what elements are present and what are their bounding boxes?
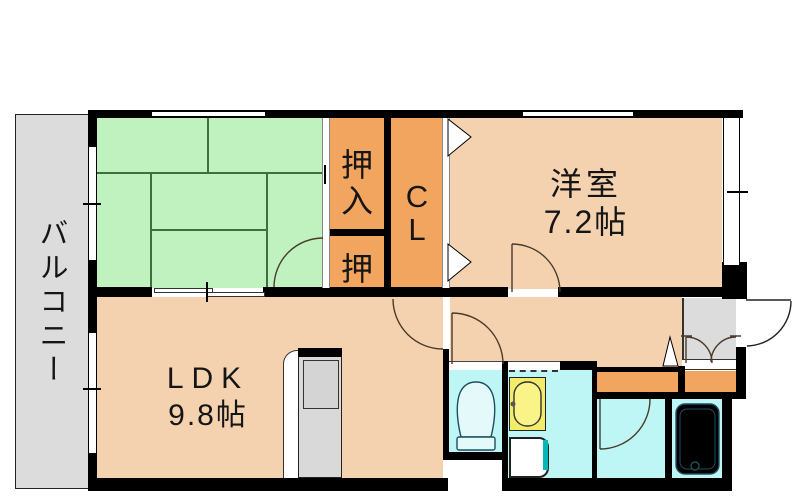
sink-faucet-dot [511,402,516,407]
bathtub-inner [680,409,715,469]
toilet-icon [457,382,494,437]
ldk-area: 9.8帖 [96,397,320,434]
folding-door-icon [448,119,471,156]
closet-oshi-label: 押 [330,244,384,290]
bathtub-drain [691,462,699,470]
door-swing-ldk [393,299,443,349]
closet-oshiire-label: 押入 [336,147,378,219]
folding-door-icon [663,337,678,366]
door-swing-western [512,244,560,292]
door-swing-changing [600,399,650,449]
closet-cl-label: CL [404,180,430,246]
floor-plan: バルコニー 押入 押 CL 洋室 7.2帖 LDK 9.8帖 [0,0,800,500]
sink-bowl [514,382,541,426]
door-swing-toilet [452,313,503,364]
door-swing-entrance [746,300,791,346]
ldk-label: LDK 9.8帖 [96,360,320,434]
western-room-area: 7.2帖 [450,203,722,241]
folding-door-markers [448,119,678,366]
balcony-label: バルコニー [30,218,72,388]
western-room-label: 洋室 7.2帖 [450,165,722,241]
folding-door-icon [448,244,471,281]
toilet-tank [457,437,495,450]
ldk-name: LDK [96,360,320,397]
western-room-name: 洋室 [450,165,722,203]
door-swing-tatami-closet [274,238,323,287]
door-swing-cabinet-double [681,336,741,363]
